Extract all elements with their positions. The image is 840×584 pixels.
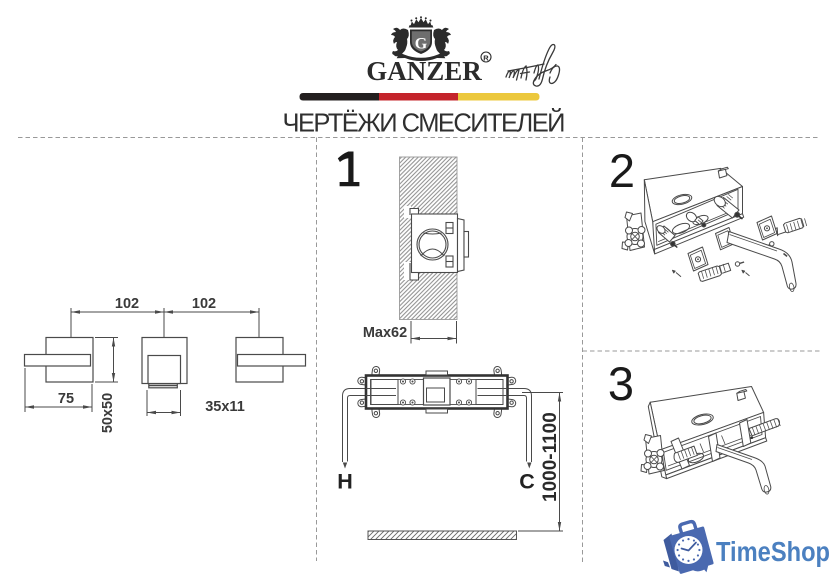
svg-text:1000-1100: 1000-1100 [540, 412, 561, 502]
svg-text:3: 3 [608, 357, 634, 410]
svg-text:R: R [483, 54, 489, 63]
svg-text:50x50: 50x50 [100, 393, 116, 433]
svg-text:102: 102 [192, 296, 216, 312]
svg-text:35x11: 35x11 [205, 399, 245, 415]
svg-text:ЧЕРТЁЖИ СМЕСИТЕЛЕЙ: ЧЕРТЁЖИ СМЕСИТЕЛЕЙ [283, 108, 566, 138]
svg-text:C: C [519, 470, 535, 494]
svg-text:H: H [337, 470, 353, 494]
svg-text:75: 75 [58, 391, 74, 407]
svg-text:2: 2 [609, 144, 635, 197]
svg-text:G: G [415, 36, 428, 53]
svg-text:Max62: Max62 [363, 325, 407, 341]
svg-text:102: 102 [115, 296, 139, 312]
svg-text:GANZER: GANZER [366, 56, 482, 86]
svg-text:TimeShop: TimeShop [716, 536, 830, 567]
